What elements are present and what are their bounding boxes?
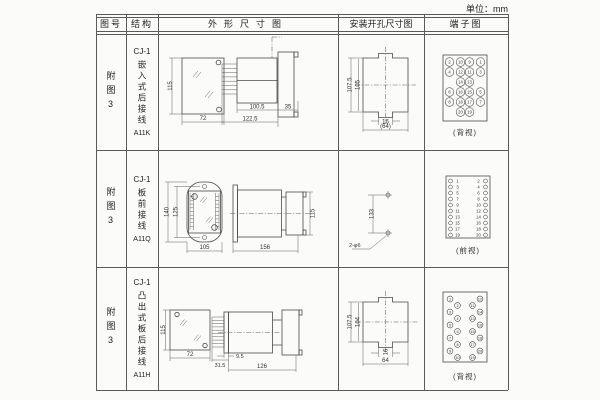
terminal-number: 11 — [467, 70, 472, 75]
terminal-number: 20 — [476, 233, 481, 238]
terminal-circle — [484, 209, 488, 213]
terminal-number: 1 — [456, 179, 459, 184]
terminal-number: 13 — [467, 80, 472, 85]
terminal-number: 12 — [478, 297, 482, 301]
terminal-number: 18 — [478, 336, 482, 340]
grid-line — [338, 14, 339, 390]
dim-label: 104 — [356, 316, 362, 327]
terminal-circle — [484, 197, 488, 201]
model-label: CJ-1 — [134, 47, 151, 56]
terminal-number: 5 — [456, 191, 459, 196]
terminal-number: 4 — [456, 317, 458, 321]
structure-cell: CJ-1 板前接线 A11Q — [126, 150, 158, 267]
terminal-number: 9 — [456, 203, 459, 208]
terminal-number: 14 — [476, 215, 481, 220]
col-header-fig-no: 图号 — [96, 17, 126, 30]
model-code: A11K — [134, 130, 151, 137]
mounting-hole — [217, 107, 222, 112]
terminal-number: 2 — [456, 304, 458, 308]
terminal-circle — [449, 233, 453, 237]
dim-label: 107.5 — [348, 77, 354, 93]
terminal-number: 17 — [467, 100, 472, 105]
terminal-circle — [484, 185, 488, 189]
col-header-terminal: 端子图 — [424, 17, 508, 30]
terminal-number: 4 — [477, 185, 480, 190]
terminal-number: 1 — [449, 297, 451, 301]
terminal-number: 3 — [456, 185, 459, 190]
terminal-number: 11 — [471, 304, 475, 308]
dim-label: 35 — [285, 105, 292, 111]
dim-label: 2-φ6 — [349, 243, 361, 249]
fig-no: 附图3 — [105, 307, 118, 350]
col-header-structure: 结构 — [126, 17, 158, 30]
terminal-circle — [449, 179, 453, 183]
terminal-number: 18 — [458, 100, 463, 105]
dim-label: (64) — [380, 124, 391, 130]
terminal-number: 1 — [479, 60, 482, 65]
terminal-circle — [484, 215, 488, 219]
terminal-number: 12 — [458, 70, 463, 75]
terminal-circle — [449, 209, 453, 213]
terminal-number: 19 — [467, 110, 472, 115]
terminal-number: 15 — [455, 221, 460, 226]
terminal-number: 6 — [448, 90, 451, 95]
terminal-number: 20 — [478, 349, 482, 353]
terminal-grid: 1234567891011121314151617181920 — [449, 179, 488, 238]
terminal-number: 19 — [455, 233, 460, 238]
terminal-circle — [449, 191, 453, 195]
dim-label: 115 — [311, 208, 317, 218]
terminal-circle — [449, 185, 453, 189]
terminal-number: 19 — [470, 356, 474, 360]
terminal-circle — [449, 215, 453, 219]
terminal-number: 4 — [448, 70, 451, 75]
structure-cell: CJ-1 凸出式板后接线 A11H — [126, 267, 158, 390]
col-header-install: 安装开孔尺寸图 — [338, 17, 424, 30]
dim-label: 115 — [161, 325, 167, 335]
install-cutout-drawing-a11k: 107.5 105 16 (64) — [340, 31, 424, 150]
mount-type-label: 嵌入式后接线 — [136, 60, 148, 126]
terminal-circle — [484, 179, 488, 183]
grid-line — [508, 14, 509, 390]
terminal-number: 16 — [478, 323, 482, 327]
terminal-circle — [484, 191, 488, 195]
mounting-hole — [203, 343, 207, 347]
terminal-number: 16 — [476, 221, 481, 226]
terminal-number: 8 — [448, 100, 451, 105]
manual-page: 单位：mm 图号 结构 外形尺寸图 安装开孔尺寸图 端子图 附图3 CJ-1 嵌… — [0, 0, 600, 400]
install-cutout-drawing-a11h: 107.5 104 16 64 — [340, 267, 424, 391]
dim-label: 156 — [260, 245, 271, 251]
terminal-number: 8 — [477, 197, 480, 202]
terminal-number: 20 — [458, 110, 463, 115]
terminal-circle — [449, 203, 453, 207]
terminal-number: 10 — [455, 356, 459, 360]
terminal-number: 6 — [477, 191, 480, 196]
fig-no: 附图3 — [105, 187, 118, 230]
mounting-hole — [175, 312, 179, 316]
terminal-number: 2 — [448, 60, 451, 65]
terminal-circle — [449, 221, 453, 225]
dim-label: 72 — [200, 116, 207, 122]
terminal-number: 12 — [476, 209, 481, 214]
dim-label: 16 — [384, 348, 390, 355]
outline-drawing-a11h: 115 72 31.5 9.5 126 — [160, 267, 338, 391]
terminal-number: 7 — [456, 197, 459, 202]
terminal-grid: 2109141211314136161558181772019 — [445, 58, 485, 117]
terminal-number: 9 — [468, 60, 471, 65]
terminal-number: 7 — [449, 336, 451, 340]
mounting-hole — [203, 236, 207, 240]
terminal-grid: 1211123413145615167817189101920 — [447, 296, 483, 360]
terminal-circle — [449, 227, 453, 231]
structure-cell: CJ-1 嵌入式后接线 A11K — [126, 34, 158, 150]
mounting-hole — [216, 60, 221, 65]
dim-label: 133 — [370, 208, 376, 219]
view-label: (前视) — [456, 245, 480, 255]
dim-label: 115 — [168, 81, 174, 91]
model-code: A11Q — [133, 236, 150, 243]
dim-label: 107.5 — [348, 314, 354, 330]
terminal-number: 10 — [476, 203, 481, 208]
terminal-number: 13 — [470, 317, 474, 321]
dim-label: 105 — [199, 245, 210, 251]
fig-no: 附图3 — [105, 71, 118, 114]
dim-label: 140 — [165, 206, 171, 217]
fig-no-cell: 附图3 — [96, 150, 126, 267]
terminal-number: 17 — [455, 227, 460, 232]
col-header-outline: 外形尺寸图 — [158, 17, 338, 30]
terminal-number: 3 — [449, 310, 451, 314]
view-label: (背视) — [453, 127, 477, 137]
terminal-number: 7 — [479, 100, 482, 105]
dim-label: 9.5 — [236, 354, 244, 360]
mounting-hole — [203, 185, 207, 189]
fig-no-cell: 附图3 — [96, 267, 126, 390]
terminal-diagram-a11q: 1234567891011121314151617181920 (前视) — [424, 150, 508, 267]
dim-label: 122.5 — [242, 117, 258, 123]
view-label: (背视) — [453, 371, 477, 381]
terminal-number: 11 — [455, 209, 460, 214]
terminal-number: 3 — [479, 70, 482, 75]
terminal-number: 13 — [455, 215, 460, 220]
terminal-number: 10 — [458, 60, 463, 65]
terminal-number: 9 — [449, 349, 451, 353]
mount-type-label: 板前接线 — [136, 188, 148, 232]
install-holes-drawing-a11q: 133 2-φ6 — [340, 150, 424, 267]
dim-label: 125 — [174, 206, 180, 217]
model-label: CJ-1 — [134, 175, 151, 184]
terminal-diagram-a11h: 1211123413145615167817189101920 (背视) — [424, 267, 508, 391]
terminal-number: 15 — [470, 330, 474, 334]
terminal-number: 6 — [456, 330, 458, 334]
terminal-number: 14 — [478, 310, 482, 314]
dim-label: 72 — [187, 352, 194, 358]
terminal-number: 5 — [479, 90, 482, 95]
terminal-circle — [484, 221, 488, 225]
dim-label: 126 — [257, 364, 268, 370]
screw-hole — [212, 225, 218, 231]
terminal-number: 17 — [470, 343, 474, 347]
outline-drawing-a11k: 115 72 100.5 122.5 35 — [160, 31, 338, 150]
model-code: A11H — [134, 372, 151, 379]
dim-label: 31.5 — [215, 363, 226, 369]
terminal-number: 18 — [476, 227, 481, 232]
grid-line — [158, 14, 159, 390]
dim-label: 100.5 — [249, 105, 265, 111]
terminal-number: 15 — [467, 90, 472, 95]
outline-drawing-a11q: 140 125 105 115 156 — [160, 150, 338, 267]
terminal-number: 2 — [477, 179, 480, 184]
terminal-circle — [484, 233, 488, 237]
terminal-number: 16 — [458, 90, 463, 95]
dim-label: 64 — [382, 358, 389, 364]
fig-no-cell: 附图3 — [96, 34, 126, 150]
terminal-diagram-a11k: 2109141211314136161558181772019 (背视) — [424, 31, 508, 150]
terminal-circle — [484, 227, 488, 231]
terminal-number: 5 — [449, 323, 451, 327]
terminal-circle — [449, 197, 453, 201]
terminal-circle — [484, 203, 488, 207]
terminal-number: 14 — [458, 80, 463, 85]
mount-type-label: 凸出式板后接线 — [136, 291, 148, 368]
terminal-number: 8 — [456, 343, 458, 347]
model-label: CJ-1 — [134, 278, 151, 287]
dim-label: 105 — [356, 79, 362, 90]
